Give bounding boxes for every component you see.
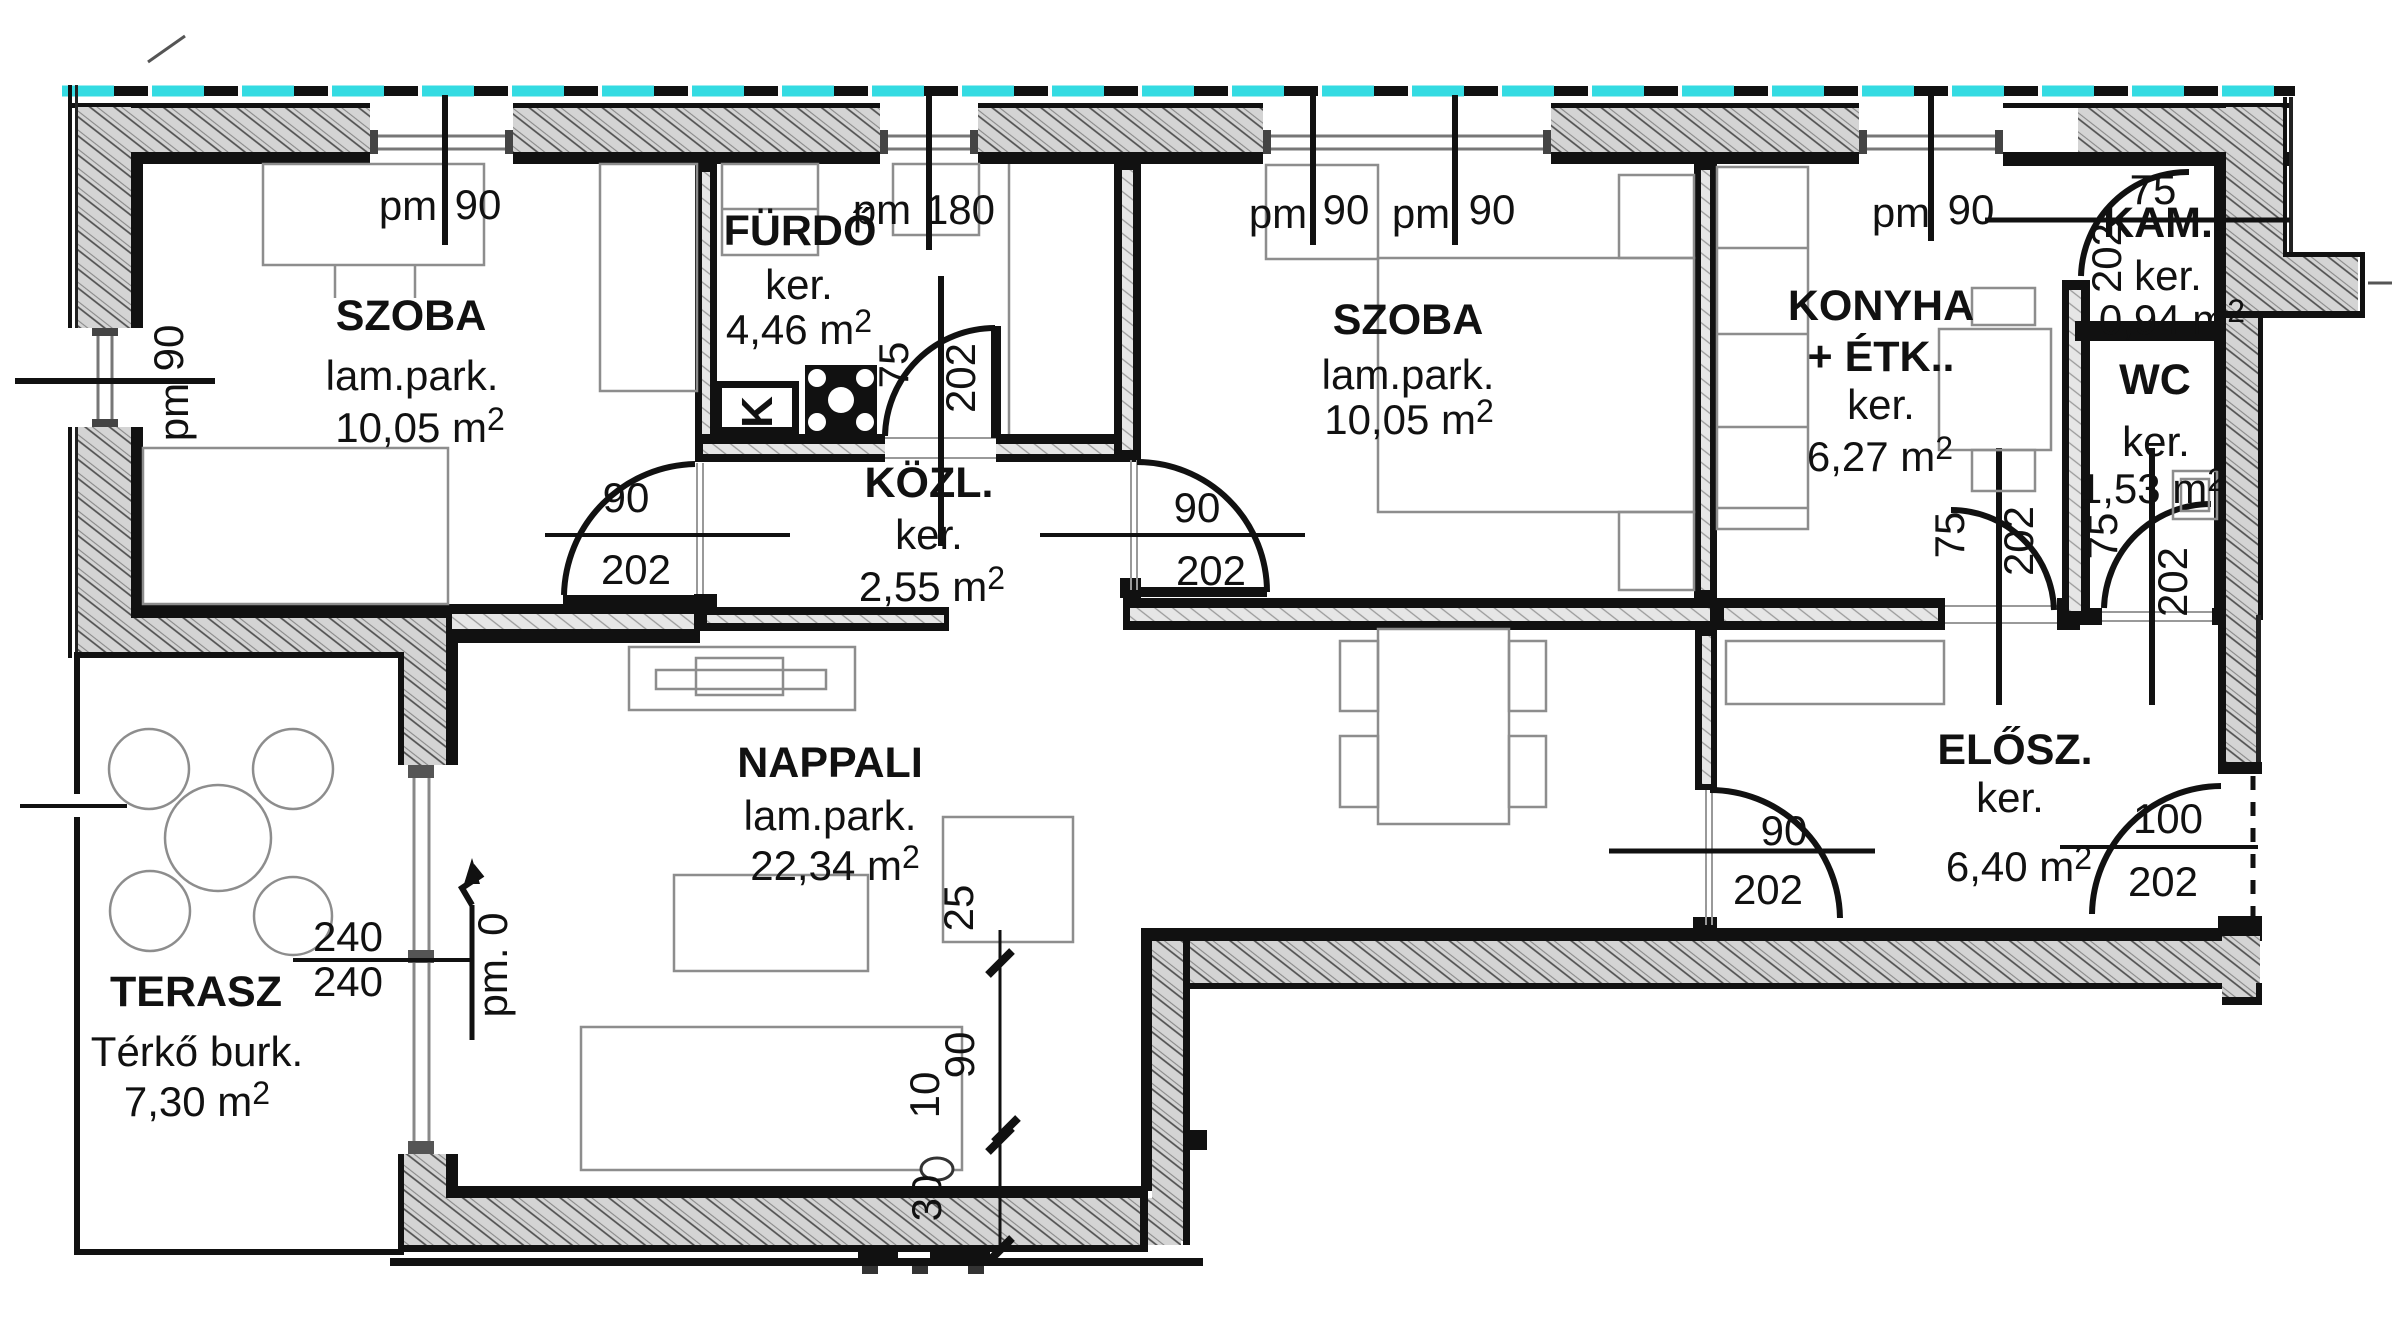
- svg-text:25: 25: [935, 885, 982, 932]
- svg-text:4,46 m2: 4,46 m2: [726, 303, 872, 353]
- svg-text:6,40 m2: 6,40 m2: [1946, 840, 2092, 890]
- svg-text:240: 240: [313, 958, 383, 1005]
- svg-text:ker.: ker.: [895, 511, 963, 558]
- svg-text:90: 90: [1174, 484, 1221, 531]
- svg-text:22,34 m2: 22,34 m2: [750, 839, 920, 889]
- svg-text:ker.: ker.: [1976, 774, 2044, 821]
- svg-text:10: 10: [901, 1072, 948, 1119]
- svg-text:SZOBA: SZOBA: [336, 292, 487, 340]
- svg-text:90: 90: [145, 325, 192, 372]
- svg-text:pm: pm: [150, 383, 197, 441]
- svg-text:202: 202: [601, 546, 671, 593]
- svg-text:30: 30: [903, 1175, 950, 1222]
- svg-text:100: 100: [2133, 795, 2203, 842]
- svg-text:90: 90: [455, 181, 502, 228]
- svg-text:75: 75: [870, 342, 917, 389]
- svg-text:90: 90: [1948, 186, 1995, 233]
- svg-text:pm: pm: [1249, 190, 1307, 237]
- svg-text:90: 90: [1469, 186, 1516, 233]
- svg-text:pm: pm: [379, 182, 437, 229]
- svg-text:KONYHA: KONYHA: [1788, 282, 1974, 330]
- svg-text:1,53 m2: 1,53 m2: [2079, 462, 2225, 512]
- svg-text:lam.park.: lam.park.: [744, 792, 917, 839]
- svg-text:ker.: ker.: [1847, 381, 1915, 428]
- svg-text:ELŐSZ.: ELŐSZ.: [1937, 726, 2092, 774]
- svg-text:ker.: ker.: [2134, 252, 2202, 299]
- svg-text:SZOBA: SZOBA: [1333, 296, 1484, 344]
- svg-text:NAPPALI: NAPPALI: [737, 739, 923, 787]
- svg-text:202: 202: [2128, 858, 2198, 905]
- svg-text:90: 90: [603, 474, 650, 521]
- svg-text:75: 75: [2079, 513, 2126, 560]
- svg-text:90: 90: [1323, 186, 1370, 233]
- svg-text:10,05 m2: 10,05 m2: [335, 401, 505, 451]
- svg-text:ker.: ker.: [765, 261, 833, 308]
- svg-text:202: 202: [1733, 866, 1803, 913]
- svg-text:2,55 m2: 2,55 m2: [859, 560, 1005, 610]
- svg-text:202: 202: [1176, 547, 1246, 594]
- svg-text:75: 75: [2130, 166, 2177, 213]
- svg-text:pm: pm: [853, 186, 911, 233]
- svg-text:10,05 m2: 10,05 m2: [1324, 393, 1494, 443]
- svg-text:202: 202: [2149, 547, 2196, 617]
- svg-text:lam.park.: lam.park.: [326, 352, 499, 399]
- svg-text:TERASZ: TERASZ: [110, 968, 282, 1016]
- svg-text:+ ÉTK..: + ÉTK..: [1808, 333, 1955, 381]
- svg-text:0,94 m2: 0,94 m2: [2099, 293, 2245, 343]
- svg-text:90: 90: [1761, 807, 1808, 854]
- svg-text:pm. 0: pm. 0: [469, 912, 516, 1017]
- svg-text:202: 202: [2083, 223, 2130, 293]
- svg-text:pm: pm: [1872, 189, 1930, 236]
- svg-text:Térkő burk.: Térkő burk.: [91, 1028, 303, 1075]
- svg-text:7,30 m2: 7,30 m2: [124, 1075, 270, 1125]
- svg-text:75: 75: [1926, 512, 1973, 559]
- svg-text:240: 240: [313, 913, 383, 960]
- svg-text:180: 180: [925, 186, 995, 233]
- svg-text:pm: pm: [1392, 190, 1450, 237]
- svg-text:202: 202: [1995, 506, 2042, 576]
- svg-text:WC: WC: [2119, 356, 2191, 404]
- svg-text:ker.: ker.: [2122, 418, 2190, 465]
- svg-text:202: 202: [937, 343, 984, 413]
- svg-text:90: 90: [936, 1032, 983, 1079]
- svg-text:K: K: [733, 396, 782, 428]
- svg-text:6,27 m2: 6,27 m2: [1807, 430, 1953, 480]
- svg-text:KÖZL.: KÖZL.: [865, 459, 994, 507]
- svg-text:lam.park.: lam.park.: [1322, 351, 1495, 398]
